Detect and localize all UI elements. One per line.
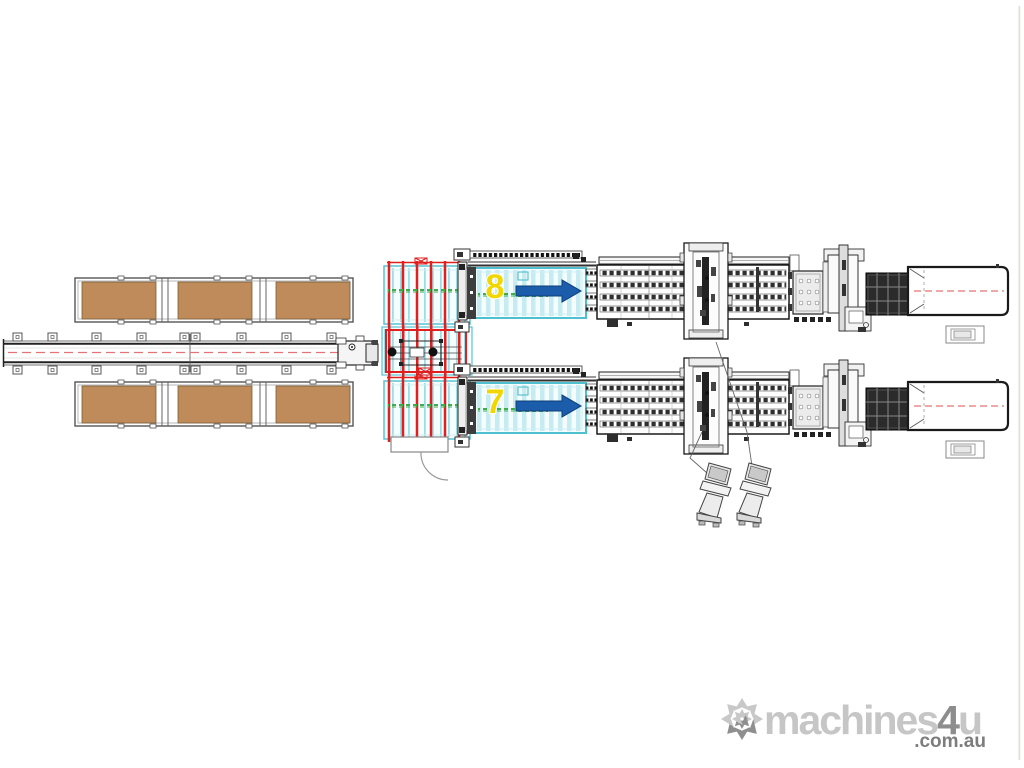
image-edge-line	[1019, 6, 1021, 760]
station-number-bottom: 7	[486, 383, 505, 421]
pallet-rack-top	[75, 276, 353, 324]
pallet-rack-bottom	[75, 380, 353, 428]
transfer-carriage	[336, 336, 378, 370]
factory-layout-diagram: 8 7 machines4u .com.au	[0, 0, 1024, 768]
station-number-top: 8	[486, 268, 505, 306]
crane-wheel	[388, 348, 397, 357]
brand-domain-suffix: .com.au	[914, 731, 986, 752]
sorting-rack-top	[384, 258, 470, 327]
sorting-rack-bottom	[384, 373, 470, 442]
crane-wheel	[429, 348, 438, 357]
